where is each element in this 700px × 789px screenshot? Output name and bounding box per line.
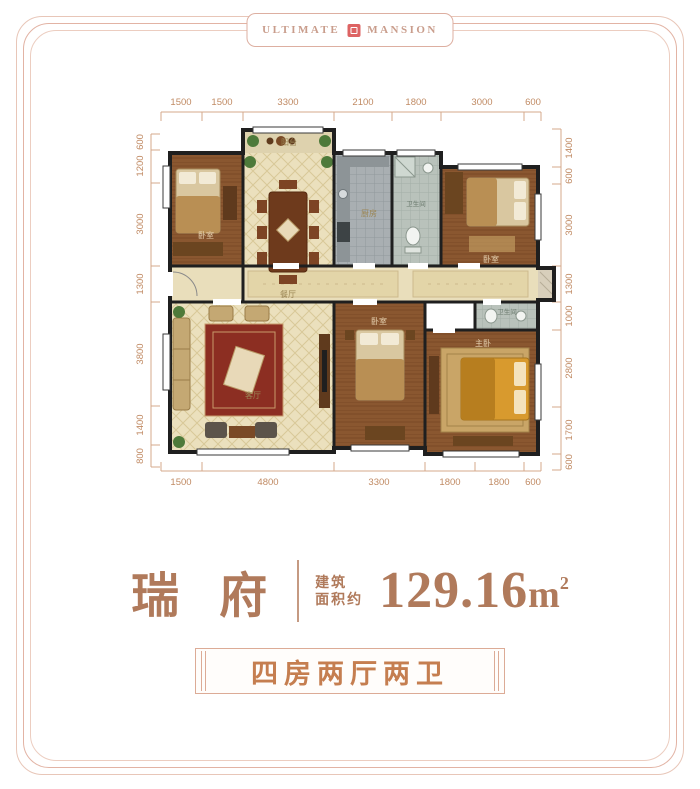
- label-balcony: 阳台: [281, 137, 297, 147]
- dresser: [223, 186, 237, 220]
- washbasin: [516, 311, 526, 321]
- dim-right-5: 1000: [564, 305, 575, 326]
- plant-icon: [247, 135, 259, 147]
- tv: [322, 350, 327, 392]
- label-kitchen: 厨房: [361, 208, 377, 218]
- armchair: [255, 422, 277, 438]
- area-value: 129.16: [379, 562, 528, 619]
- dimension-chain-left: [151, 134, 160, 467]
- brand-right-text: MANSION: [367, 24, 438, 36]
- label-bath-br: 卫生间: [497, 307, 517, 316]
- wardrobe: [173, 242, 223, 256]
- rug: [469, 236, 515, 252]
- dim-left-6: 1400: [135, 414, 146, 435]
- sink: [339, 190, 348, 199]
- estate-name: 瑞 府: [131, 556, 281, 626]
- dim-top-5: 1800: [405, 97, 426, 108]
- armchair: [209, 306, 233, 321]
- dim-top-4: 2100: [352, 97, 373, 108]
- dim-bottom-1: 1500: [170, 477, 191, 488]
- armchair: [245, 306, 269, 321]
- wardrobe: [365, 426, 405, 440]
- brand-banner: ULTIMATE MANSION: [247, 13, 454, 47]
- dim-left-3: 3000: [135, 213, 146, 234]
- room-bath-br: [475, 302, 538, 330]
- sofa: [173, 318, 190, 410]
- dim-bottom-5: 1800: [488, 477, 509, 488]
- stove: [337, 222, 350, 242]
- dimension-chain-bottom: [161, 462, 541, 471]
- wardrobe: [445, 172, 463, 214]
- dim-left-2: 1200: [135, 155, 146, 176]
- dim-top-7: 600: [525, 97, 541, 108]
- dim-right-6: 2800: [564, 357, 575, 378]
- bench: [453, 436, 513, 446]
- page: ULTIMATE MANSION: [0, 0, 700, 789]
- dim-left-7: 800: [135, 448, 146, 464]
- dim-right-2: 600: [564, 168, 575, 184]
- dim-top-6: 3000: [471, 97, 492, 108]
- area-superscript: 2: [560, 573, 569, 593]
- label-bedroom-tl: 卧室: [198, 230, 214, 240]
- washbasin: [423, 163, 433, 173]
- label-bedroom-tr: 卧室: [483, 254, 499, 264]
- red-seal-icon: [347, 24, 360, 37]
- dim-top-2: 1500: [211, 97, 232, 108]
- plant-icon: [319, 135, 331, 147]
- dim-bottom-2: 4800: [257, 477, 278, 488]
- layout-badge: 四房两厅两卫: [195, 648, 505, 694]
- armchair: [205, 422, 227, 438]
- dim-left-4: 1300: [135, 273, 146, 294]
- dim-top-3: 3300: [277, 97, 298, 108]
- label-bedroom-bm: 卧室: [371, 316, 387, 326]
- plant-icon: [244, 156, 256, 168]
- corridor-runner-1: [248, 271, 398, 297]
- tv-cabinet: [429, 356, 439, 414]
- area-label-line1: 建筑: [315, 574, 363, 591]
- dim-bottom-6: 600: [525, 477, 541, 488]
- floorplan-svg: 1500 1500 3300 2100 1800 3000 600 1500 4…: [113, 66, 587, 532]
- area-unit: m: [528, 574, 560, 616]
- label-dining: 餐厅: [280, 290, 296, 299]
- kitchen-counter: [337, 156, 350, 262]
- brand-left-text: ULTIMATE: [262, 24, 340, 36]
- title-block: 瑞 府 建筑 面积约 129.16m2: [0, 556, 700, 626]
- floorplan: 1500 1500 3300 2100 1800 3000 600 1500 4…: [113, 66, 587, 532]
- area-label-line2: 面积约: [315, 591, 363, 608]
- dim-left-1: 600: [135, 134, 146, 150]
- dim-right-3: 3000: [564, 214, 575, 235]
- side-table: [229, 426, 255, 438]
- dimension-chain-top: [161, 112, 541, 121]
- dim-right-7: 1700: [564, 419, 575, 440]
- toilet: [485, 309, 497, 323]
- label-master: 主卧: [475, 338, 491, 348]
- plant-icon: [173, 436, 185, 448]
- layout-badge-text: 四房两厅两卫: [251, 652, 449, 691]
- dim-left-5: 3800: [135, 343, 146, 364]
- plant-icon: [173, 306, 185, 318]
- label-bath-top: 卫生间: [406, 199, 426, 208]
- dim-top-1: 1500: [170, 97, 191, 108]
- title-divider: [297, 560, 299, 622]
- toilet: [406, 227, 420, 245]
- dim-right-4: 1300: [564, 273, 575, 294]
- dim-bottom-4: 1800: [439, 477, 460, 488]
- dim-bottom-3: 3300: [368, 477, 389, 488]
- plant-icon: [321, 156, 333, 168]
- area-figure: 129.16m2: [379, 565, 569, 617]
- label-living: 客厅: [245, 390, 261, 400]
- area-label: 建筑 面积约: [315, 574, 363, 608]
- dim-right-1: 1400: [564, 137, 575, 158]
- dim-right-8: 600: [564, 454, 575, 470]
